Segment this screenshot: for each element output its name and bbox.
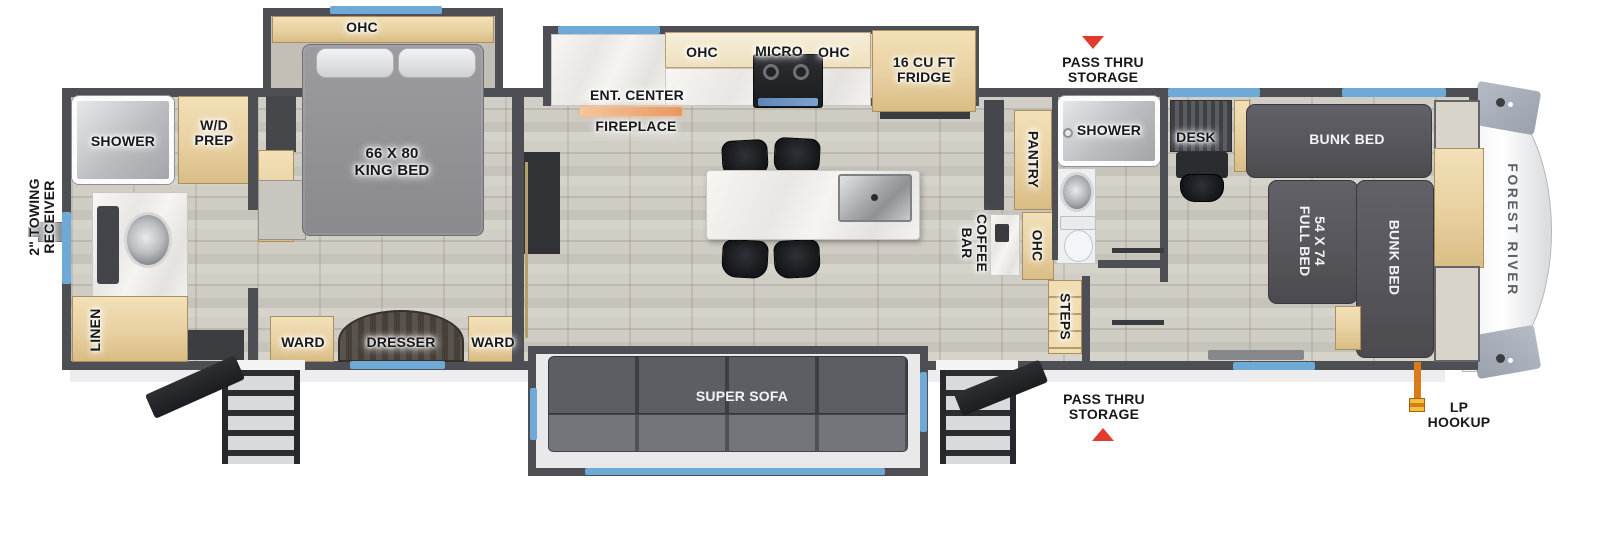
rear-bath-sink bbox=[124, 212, 172, 268]
bed-pillow-right bbox=[398, 48, 476, 78]
window-rear-left bbox=[62, 212, 71, 284]
label-pantry: PANTRY bbox=[1026, 123, 1041, 197]
cap-light-top-icon bbox=[1496, 98, 1505, 107]
label-wd-prep: W/D PREP bbox=[182, 118, 246, 149]
entry-steps-left bbox=[222, 370, 300, 464]
window-sofa-left bbox=[530, 388, 537, 440]
entry-threshold-right bbox=[936, 360, 1018, 370]
window-sofa-bottom bbox=[585, 468, 885, 475]
label-king-bed: 66 X 80 KING BED bbox=[337, 146, 447, 179]
bunk-ladder-rail-2 bbox=[1112, 320, 1164, 325]
wall-bath-bottom bbox=[1098, 260, 1168, 268]
sofa-back bbox=[548, 356, 908, 414]
label-bedroom-ohc: OHC bbox=[332, 20, 392, 35]
bedroom-nightstand bbox=[266, 96, 296, 152]
pocket-door-trim bbox=[525, 162, 528, 338]
label-bunk-bed-right: BUNK BED bbox=[1387, 212, 1402, 304]
window-bunk-bottom bbox=[1233, 362, 1315, 370]
label-linen: LINEN bbox=[88, 302, 104, 358]
bedroom-closet-front bbox=[258, 180, 306, 240]
wall-bath-bedroom-top bbox=[248, 96, 258, 210]
desk-chair bbox=[1180, 174, 1224, 202]
cap-light-bottom-icon bbox=[1496, 354, 1505, 363]
label-ward-left: WARD bbox=[268, 335, 338, 350]
stove-burner-left-icon bbox=[763, 64, 779, 80]
wall-bedroom-living bbox=[512, 96, 524, 362]
label-mid-shower: SHOWER bbox=[1064, 123, 1154, 138]
label-rear-shower: SHOWER bbox=[78, 134, 168, 149]
cap-storage-top bbox=[1434, 100, 1480, 150]
island-chair-3 bbox=[721, 239, 769, 279]
label-lp-hookup: LP HOOKUP bbox=[1420, 400, 1498, 431]
lp-pipe bbox=[1414, 362, 1421, 402]
label-super-sofa: SUPER SOFA bbox=[682, 389, 802, 404]
coffee-maker-icon bbox=[995, 224, 1009, 242]
island-chair-4 bbox=[773, 239, 821, 279]
label-mid-ohc: OHC bbox=[1030, 226, 1045, 266]
arrow-up-icon bbox=[1092, 428, 1114, 441]
label-fireplace: FIREPLACE bbox=[582, 119, 690, 134]
wall-bath-right bbox=[1160, 96, 1168, 282]
rv-floorplan: FOREST RIVER bbox=[0, 0, 1600, 543]
mid-bath-sink bbox=[1060, 172, 1094, 212]
bunk-corner-cabinet bbox=[1335, 306, 1361, 350]
fireplace-unit bbox=[580, 107, 682, 116]
toilet-tank bbox=[1060, 216, 1096, 230]
bunkroom-floor-mat bbox=[1208, 350, 1304, 360]
island-faucet-icon bbox=[871, 194, 878, 201]
window-sofa-right bbox=[920, 372, 927, 432]
rear-bath-counter bbox=[188, 330, 244, 360]
label-pass-thru-top: PASS THRU STORAGE bbox=[1045, 55, 1161, 86]
label-steps: STEPS bbox=[1058, 287, 1073, 347]
label-kitchen-ohc-left: OHC bbox=[672, 45, 732, 60]
label-ent-center: ENT. CENTER bbox=[578, 88, 696, 103]
arrow-down-icon bbox=[1082, 36, 1104, 49]
toilet-bowl bbox=[1064, 230, 1093, 262]
label-dresser: DRESSER bbox=[356, 335, 446, 350]
cap-storage-bottom bbox=[1434, 266, 1480, 362]
window-bedroom-bottom bbox=[350, 361, 445, 369]
wall-steps-right bbox=[1082, 276, 1090, 362]
bunk-ladder-rail-1 bbox=[1112, 248, 1164, 253]
brand-logo: FOREST RIVER bbox=[1504, 145, 1520, 315]
label-bunk-bed-top: BUNK BED bbox=[1295, 132, 1399, 147]
window-bunk-top-2 bbox=[1342, 88, 1446, 97]
cap-trim-bottom bbox=[1471, 325, 1542, 379]
label-desk: DESK bbox=[1164, 130, 1228, 145]
window-bunk-top-1 bbox=[1168, 88, 1260, 97]
vanity-mirror bbox=[97, 206, 119, 284]
label-pass-thru-bottom: PASS THRU STORAGE bbox=[1046, 392, 1162, 423]
window-ent-center bbox=[558, 26, 660, 34]
corner-cabinet bbox=[984, 100, 1004, 210]
wall-bath-left bbox=[1052, 96, 1058, 260]
label-coffee-bar: COFFEE BAR bbox=[959, 211, 989, 275]
label-ward-right: WARD bbox=[458, 335, 528, 350]
window-bedroom-slide bbox=[330, 6, 442, 14]
front-wardrobe bbox=[1434, 148, 1484, 268]
label-towing-receiver: 2" TOWING RECEIVER bbox=[27, 170, 57, 264]
sofa-seats bbox=[548, 414, 908, 452]
bed-pillow-left bbox=[316, 48, 394, 78]
wall-bath-bedroom-bottom bbox=[248, 288, 258, 360]
tv-panel bbox=[524, 152, 560, 254]
label-kitchen-ohc-right: OHC bbox=[804, 45, 864, 60]
label-fridge: 16 CU FT FRIDGE bbox=[871, 55, 977, 86]
oven-handle bbox=[758, 98, 818, 106]
fridge-base bbox=[880, 112, 970, 119]
label-full-bed: 54 X 74 FULL BED bbox=[1297, 199, 1327, 283]
stove-burner-right-icon bbox=[793, 64, 809, 80]
